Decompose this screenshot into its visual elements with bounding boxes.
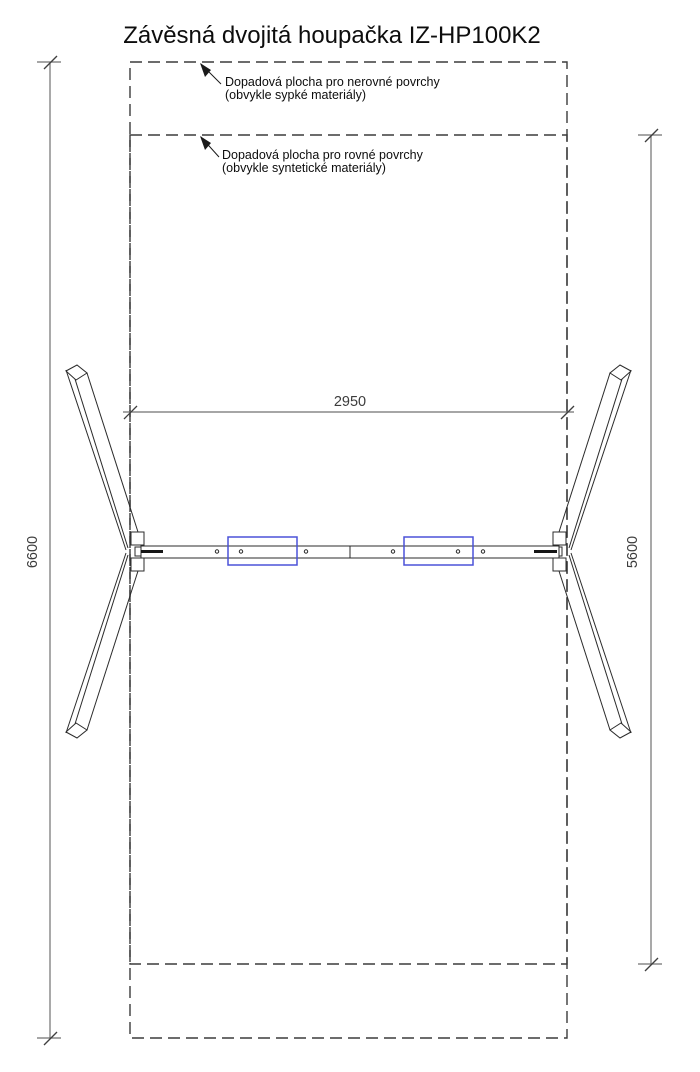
leader-fall-zone-even: Dopadová plocha pro rovné povrchy (obvyk… [200, 136, 424, 175]
leg-edge [569, 379, 622, 548]
leg-cap [66, 365, 87, 380]
dimension-beam-span: 2950 [123, 394, 574, 419]
leader-line [201, 137, 219, 157]
leg-edge [571, 370, 631, 550]
drawing-title: Závěsná dvojitá houpačka IZ-HP100K2 [123, 22, 541, 49]
swing-structure [66, 365, 631, 738]
bracket-plate [553, 532, 566, 545]
leg-top-left [66, 365, 138, 550]
leg-cap [610, 723, 631, 738]
fall-zone-uneven-sublabel: (obvykle sypké materiály) [225, 88, 366, 102]
dimension-value-inner-height: 5600 [625, 536, 641, 568]
leg-cap [66, 723, 87, 738]
dimension-value-total-height: 6600 [25, 536, 41, 568]
dimension-inner-height: 5600 [625, 129, 662, 971]
fall-zone-uneven-label: Dopadová plocha pro nerovné povrchy [225, 75, 440, 89]
bracket-plate [131, 558, 144, 571]
leg-edge [569, 555, 622, 724]
leg-bottom-right [559, 553, 631, 738]
leader-fall-zone-uneven: Dopadová plocha pro nerovné povrchy (obv… [200, 63, 440, 102]
leg-bottom-left [66, 553, 138, 738]
bracket-plate [553, 558, 566, 571]
leg-edge [66, 553, 126, 733]
bracket-plate [131, 532, 144, 545]
leg-edge [75, 555, 128, 724]
leg-cap [610, 365, 631, 380]
technical-drawing: Závěsná dvojitá houpačka IZ-HP100K2 6600… [0, 0, 700, 1072]
leg-edge [571, 553, 631, 733]
drawing-sheet: Závěsná dvojitá houpačka IZ-HP100K2 6600… [0, 0, 700, 1072]
leg-top-right [559, 365, 631, 550]
leg-edge [66, 370, 126, 550]
dimension-total-height: 6600 [25, 56, 61, 1045]
fall-zone-even-label: Dopadová plocha pro rovné povrchy [222, 148, 424, 162]
leg-edge [75, 379, 128, 548]
fall-zone-even-sublabel: (obvykle syntetické materiály) [222, 161, 386, 175]
dimension-value-beam-span: 2950 [334, 394, 366, 410]
